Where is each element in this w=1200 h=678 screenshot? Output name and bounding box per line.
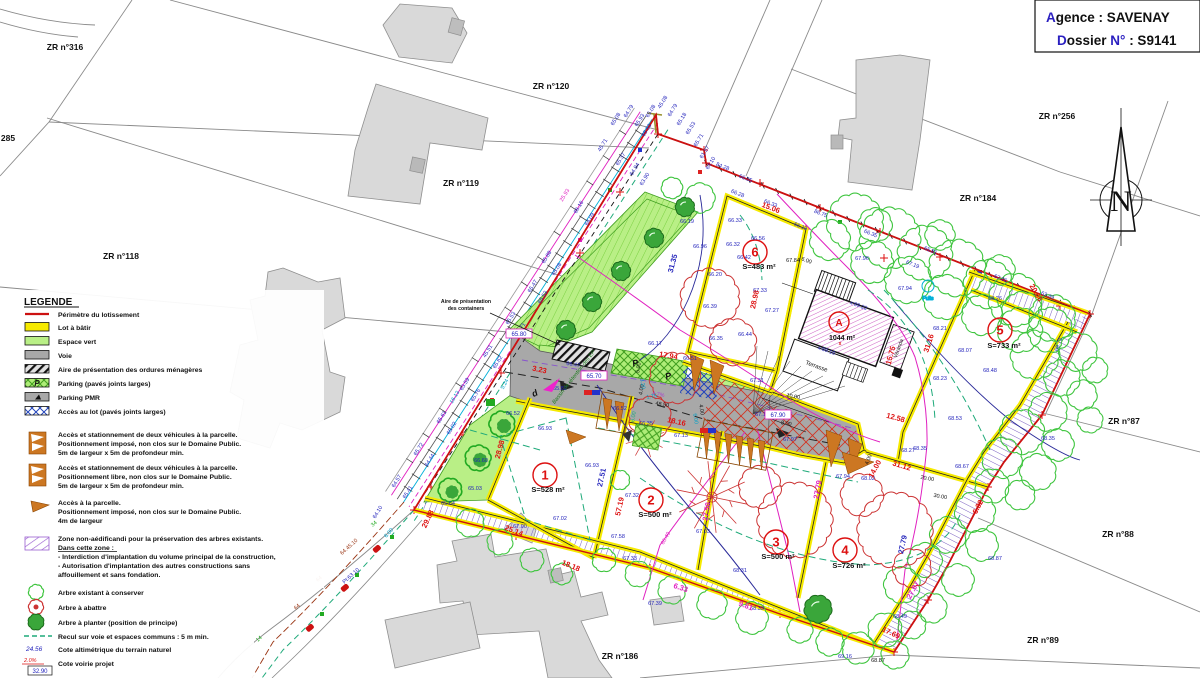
svg-text:66.52: 66.52 (613, 406, 627, 412)
svg-text:Positionnement libre, non clos: Positionnement libre, non clos sur le Do… (58, 474, 232, 481)
svg-text:66.17: 66.17 (648, 341, 662, 347)
svg-text:66.32: 66.32 (726, 242, 740, 248)
svg-text:ZR n°119: ZR n°119 (443, 178, 479, 188)
svg-text:Arbre existant à conserver: Arbre existant à conserver (58, 590, 144, 597)
svg-text:65.70: 65.70 (586, 374, 602, 380)
svg-text:Puits: Puits (922, 296, 934, 302)
svg-text:1: 1 (541, 468, 548, 483)
svg-text:66.35: 66.35 (709, 336, 723, 342)
svg-text:5m de largeur x 5m de profonde: 5m de largeur x 5m de profondeur min. (58, 483, 184, 490)
svg-text:A: A (835, 318, 842, 329)
svg-text:S=528 m²: S=528 m² (531, 485, 565, 494)
svg-text:Parking PMR: Parking PMR (58, 395, 100, 402)
svg-text:65.80: 65.80 (511, 332, 527, 338)
svg-text:Dossier N° : S9141: Dossier N° : S9141 (1057, 33, 1177, 48)
svg-text:Aire de présentation: Aire de présentation (441, 299, 491, 305)
svg-text:66.42: 66.42 (737, 255, 751, 261)
svg-text:Espace vert: Espace vert (58, 339, 97, 346)
svg-text:des containers: des containers (448, 306, 485, 312)
svg-text:Dans cette zone :: Dans cette zone : (58, 545, 114, 552)
svg-text:ZR n°186: ZR n°186 (602, 651, 639, 661)
svg-text:66.96: 66.96 (693, 244, 707, 250)
svg-text:Cote voirie projet: Cote voirie projet (58, 661, 115, 668)
svg-text:Accès et stationnement de deux: Accès et stationnement de deux véhicules… (58, 432, 238, 439)
svg-text:68.21: 68.21 (933, 326, 947, 332)
svg-text:67.27: 67.27 (765, 308, 779, 314)
svg-text:ZR n°184: ZR n°184 (960, 193, 997, 203)
svg-text:Agence : SAVENAY: Agence : SAVENAY (1046, 10, 1170, 25)
svg-text:ZR n°120: ZR n°120 (533, 81, 570, 91)
svg-text:Positionnement imposé, non clo: Positionnement imposé, non clos sur le D… (58, 441, 241, 448)
svg-text:66.39: 66.39 (703, 304, 717, 310)
svg-text:66.93: 66.93 (585, 463, 599, 469)
svg-text:N: N (1110, 185, 1132, 218)
svg-text:67.32: 67.32 (625, 493, 639, 499)
svg-text:66.33: 66.33 (728, 218, 742, 224)
svg-text:2: 2 (647, 493, 654, 508)
svg-text:66.20: 66.20 (708, 272, 722, 278)
svg-text:P: P (34, 379, 40, 388)
svg-text:67.02: 67.02 (553, 516, 567, 522)
svg-text:ZR n°256: ZR n°256 (1039, 111, 1076, 121)
svg-text:4: 4 (841, 543, 849, 558)
svg-text:1044 m²: 1044 m² (829, 335, 856, 342)
svg-text:ZR n°118: ZR n°118 (103, 251, 139, 261)
svg-text:67.84: 67.84 (786, 258, 800, 264)
svg-text:Accès à la parcelle.: Accès à la parcelle. (58, 500, 121, 507)
svg-text:68.87: 68.87 (871, 658, 885, 664)
svg-text:66.52: 66.52 (506, 411, 520, 417)
svg-text:Aire de présentation des ordur: Aire de présentation des ordures ménagèr… (58, 367, 203, 374)
svg-text:Parking (pavés joints larges): Parking (pavés joints larges) (58, 381, 151, 388)
svg-text:S=500 m²: S=500 m² (761, 552, 795, 561)
svg-text:ZR n°316: ZR n°316 (47, 42, 84, 52)
svg-text:68.48: 68.48 (983, 368, 997, 374)
svg-text:S=500 m²: S=500 m² (638, 510, 672, 519)
svg-text:S=733 m²: S=733 m² (987, 341, 1021, 350)
svg-text:68.35: 68.35 (913, 446, 927, 452)
svg-text:LEGENDE: LEGENDE (24, 297, 73, 308)
svg-text:66.93: 66.93 (538, 426, 552, 432)
svg-text:66.56: 66.56 (751, 236, 765, 242)
svg-text:3: 3 (772, 535, 779, 550)
svg-text:68.67: 68.67 (955, 464, 969, 470)
svg-text:Accès et stationnement de deux: Accès et stationnement de deux véhicules… (58, 465, 238, 472)
svg-text:- Autorisation d'implantation: - Autorisation d'implantation des autres… (58, 563, 250, 570)
svg-text:67.58: 67.58 (611, 534, 625, 540)
svg-text:65.03: 65.03 (468, 486, 482, 492)
svg-text:Lot à bâtir: Lot à bâtir (58, 325, 91, 332)
svg-text:5: 5 (996, 323, 1003, 338)
svg-text:68.27: 68.27 (901, 448, 915, 454)
svg-text:Voie: Voie (58, 353, 72, 360)
svg-text:68.35: 68.35 (1041, 436, 1055, 442)
svg-text:67.13: 67.13 (674, 433, 688, 439)
svg-text:67.94: 67.94 (898, 286, 912, 292)
svg-text:Accès au lot (pavés joints lar: Accès au lot (pavés joints larges) (58, 409, 166, 416)
svg-text:68.31: 68.31 (733, 568, 747, 574)
svg-text:Périmètre du lotissement: Périmètre du lotissement (58, 312, 140, 319)
svg-text:Zone non-aédificandi pour la p: Zone non-aédificandi pour la préservatio… (58, 536, 263, 543)
svg-text:ZR n°87: ZR n°87 (1108, 416, 1140, 426)
svg-text:Arbre à planter (position de p: Arbre à planter (position de principe) (58, 620, 177, 627)
svg-text:Arbre à abattre: Arbre à abattre (58, 605, 107, 612)
svg-text:67.94: 67.94 (836, 474, 850, 480)
svg-text:Recul sur voie et espaces comm: Recul sur voie et espaces communs : 5 m … (58, 634, 209, 641)
svg-text:67.97: 67.97 (783, 437, 797, 443)
svg-text:affouillement et sans fondatio: affouillement et sans fondation. (58, 572, 160, 579)
svg-text:68.49: 68.49 (893, 614, 907, 620)
svg-text:6: 6 (751, 245, 758, 260)
svg-text:2.0%: 2.0% (23, 658, 37, 664)
svg-text:24.56: 24.56 (25, 646, 43, 653)
svg-text:68.87: 68.87 (988, 556, 1002, 562)
svg-text:66.44: 66.44 (738, 332, 752, 338)
svg-text:- Interdiction d'implantation: - Interdiction d'implantation du volume … (58, 554, 276, 561)
svg-text:67.03: 67.03 (696, 529, 710, 535)
svg-text:68.53: 68.53 (948, 416, 962, 422)
svg-text:32.90: 32.90 (32, 669, 48, 675)
svg-text:69.16: 69.16 (838, 654, 852, 660)
svg-text:ZR n°89: ZR n°89 (1027, 635, 1059, 645)
svg-text:S=726 m²: S=726 m² (832, 561, 866, 570)
svg-text:5m de largeur x 5m de profonde: 5m de largeur x 5m de profondeur min. (58, 450, 184, 457)
svg-text:66.51: 66.51 (683, 356, 697, 362)
svg-text:Positionnement imposé, non clo: Positionnement imposé, non clos sur le D… (58, 509, 241, 516)
svg-text:67.33: 67.33 (623, 556, 637, 562)
svg-text:66.60: 66.60 (474, 458, 488, 464)
svg-text:Cote altimétrique du terrain n: Cote altimétrique du terrain naturel (58, 647, 171, 654)
svg-text:285: 285 (1, 133, 15, 143)
svg-text:67.39: 67.39 (648, 601, 662, 607)
svg-text:67.96: 67.96 (855, 256, 869, 262)
svg-text:ZR n°88: ZR n°88 (1102, 529, 1134, 539)
svg-text:66.19: 66.19 (680, 219, 694, 225)
svg-text:68.26: 68.26 (988, 296, 1002, 302)
svg-text:67.31: 67.31 (750, 378, 764, 384)
svg-text:x: x (839, 341, 842, 347)
svg-text:4m de largeur: 4m de largeur (58, 518, 103, 525)
svg-text:68.23: 68.23 (933, 376, 947, 382)
svg-text:68.07: 68.07 (958, 348, 972, 354)
svg-text:65.64: 65.64 (441, 501, 455, 507)
svg-text:67.90: 67.90 (770, 413, 786, 419)
svg-text:S=483 m²: S=483 m² (742, 262, 776, 271)
